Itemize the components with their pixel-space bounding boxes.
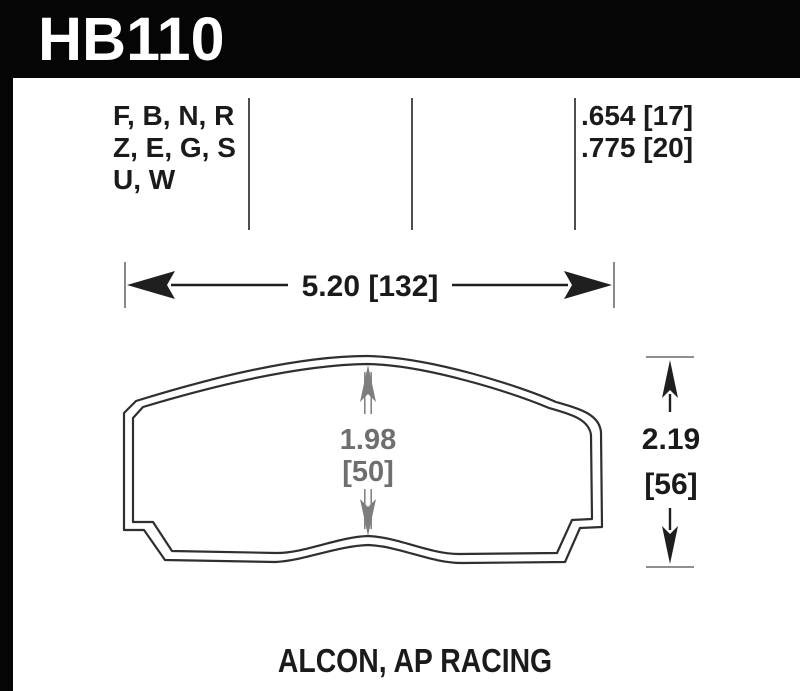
width-dimension: 5.20 [132] bbox=[125, 262, 614, 308]
center-arrow-up-icon bbox=[360, 365, 376, 402]
height-arrow-up-icon bbox=[662, 360, 678, 398]
overall-height-bracket: [56] bbox=[644, 468, 697, 501]
height-arrow-down-icon bbox=[662, 526, 678, 564]
center-height-value: 1.98 bbox=[340, 424, 396, 456]
width-arrow-right-icon bbox=[564, 271, 612, 299]
overall-height-value: 2.19 bbox=[642, 423, 700, 456]
diagram-page: HB110 F, B, N, R Z, E, G, S U, W .654 [1… bbox=[0, 0, 800, 691]
overall-height-dimension: 2.19 [56] bbox=[642, 357, 700, 567]
width-arrow-left-icon bbox=[127, 271, 175, 299]
center-arrow-down-icon bbox=[360, 499, 376, 536]
width-dimension-label: 5.20 [132] bbox=[302, 270, 439, 303]
center-height-bracket: [50] bbox=[342, 456, 394, 488]
center-height-dimension: 1.98 [50] bbox=[340, 365, 396, 536]
brake-pad-drawing: 5.20 [132] 1.98 [50] 2.19 [56] bbox=[0, 0, 800, 691]
applications-label: ALCON, AP RACING bbox=[278, 642, 552, 680]
